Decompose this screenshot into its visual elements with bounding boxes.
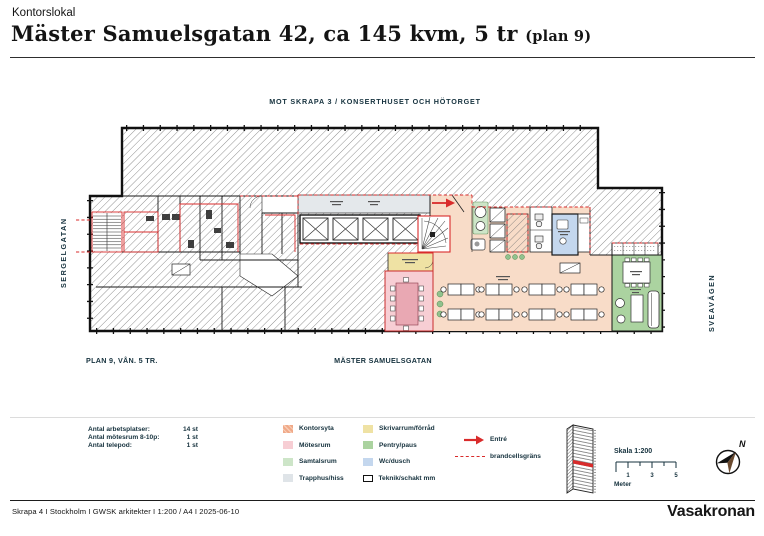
legend-item-skrivarrum: Skrivarrum/förråd — [363, 424, 435, 433]
page-title-suffix: (plan 9) — [525, 28, 591, 45]
page-title: Mäster Samuelsgatan 42, ca 145 kvm, 5 tr… — [11, 21, 591, 46]
room-pentry — [612, 255, 662, 331]
scale-unit: Meter — [614, 481, 632, 488]
label-street-bottom: MÄSTER SAMUELSGATAN — [334, 356, 432, 365]
samtalsrum-swatch — [283, 458, 293, 466]
footer-info: Skrapa 4 I Stockholm I GWSK arkitekter I… — [12, 507, 239, 516]
entry-legend-label: Entré — [490, 436, 507, 443]
scale-tick-1: 1 — [626, 473, 630, 479]
header-divider — [10, 57, 755, 58]
elevator-bank — [300, 215, 420, 243]
stats-block: Antal arbetsplatser:14 st Antal mötesrum… — [88, 426, 198, 451]
page-title-main: Mäster Samuelsgatan 42, ca 145 kvm, 5 tr — [11, 21, 518, 46]
pentry-swatch — [363, 441, 373, 449]
scale-bar: Skala 1:200 1 3 5 Meter — [610, 444, 694, 488]
legend-column-2: Skrivarrum/förråd Pentry/paus Wc/dusch T… — [363, 424, 435, 490]
label-direction-top: MOT SKRAPA 3 / KONSERTHUSET OCH HÖTORGET — [269, 97, 481, 106]
footer-divider — [10, 500, 755, 501]
brand-logo: Vasakronan — [667, 503, 755, 521]
label-street-left: SERGELGATAN — [59, 217, 68, 288]
legend-column-1: Kontorsyta Mötesrum Samtalsrum Trapphus/… — [283, 424, 344, 490]
motesrum-swatch — [283, 441, 293, 449]
wc-swatch — [363, 458, 373, 466]
label-street-right: SVEAVÄGEN — [707, 274, 716, 332]
scale-tick-3: 3 — [650, 473, 654, 479]
building-stack-icon — [563, 421, 599, 499]
kontorsyta-swatch — [283, 425, 293, 433]
firewall-legend-label: brandcellsgräns — [490, 453, 541, 460]
entry-arrow-icon — [463, 435, 485, 445]
stat-row: Antal mötesrum 8-10p:1 st — [88, 434, 198, 442]
legend-item-pentry: Pentry/paus — [363, 441, 435, 450]
category-label: Kontorslokal — [12, 7, 75, 19]
north-label: N — [739, 439, 746, 449]
trapphus-swatch — [283, 474, 293, 482]
winder-stair — [418, 216, 450, 252]
stat-row: Antal telepod:1 st — [88, 442, 198, 450]
room-wc-dusch — [552, 214, 578, 255]
service-rooms — [472, 207, 590, 255]
north-compass-icon: N — [706, 432, 754, 484]
floorplan-document-page: Kontorslokal Mäster Samuelsgatan 42, ca … — [0, 0, 764, 536]
teknik-swatch — [363, 475, 373, 483]
legend-item-motesrum: Mötesrum — [283, 441, 344, 450]
room-schakt — [507, 214, 528, 252]
label-plan-level: PLAN 9, VÅN. 5 TR. — [86, 356, 158, 365]
firewall-dash-sample — [455, 456, 485, 457]
scale-tick-5: 5 — [674, 473, 678, 479]
room-trapphus-hall — [298, 195, 430, 213]
legend-item-wc: Wc/dusch — [363, 457, 435, 466]
legend-item-trapphus: Trapphus/hiss — [283, 474, 344, 483]
legend-item-teknik: Teknik/schakt mm — [363, 474, 435, 483]
room-skrivarrum — [388, 253, 433, 271]
stat-row: Antal arbetsplatser:14 st — [88, 426, 198, 434]
legend-item-samtalsrum: Samtalsrum — [283, 457, 344, 466]
floorplan-drawing: MOT SKRAPA 3 / KONSERTHUSET OCH HÖTORGET… — [40, 88, 760, 375]
room-motesrum — [385, 271, 433, 331]
scale-title: Skala 1:200 — [614, 448, 652, 455]
skrivarrum-swatch — [363, 425, 373, 433]
legend-item-kontorsyta: Kontorsyta — [283, 424, 344, 433]
legend-divider — [10, 417, 755, 418]
